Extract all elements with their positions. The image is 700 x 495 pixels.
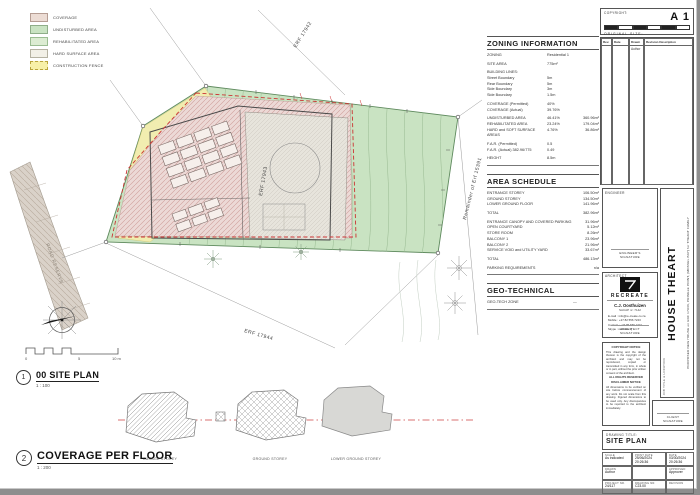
zoning-title: ZONING INFORMATION bbox=[487, 36, 599, 50]
erf-top-label: ERF 17942 bbox=[293, 21, 314, 49]
row-value2 bbox=[573, 156, 599, 162]
row-value: 141.96m² bbox=[573, 202, 599, 208]
row-label: LOWER GROUND FLOOR bbox=[487, 202, 573, 208]
legend-swatch bbox=[30, 13, 48, 22]
row-label: F.A.R. (Actual) 382.96/775 bbox=[487, 148, 547, 154]
area-row: PARKING REQUIREMENTS n/a bbox=[487, 266, 599, 272]
disclaimer-body: All dimensions to be verified on site be… bbox=[606, 386, 646, 411]
road-band: ROAD RESERVE bbox=[10, 162, 90, 330]
row-value2 bbox=[573, 62, 599, 68]
legend-swatch bbox=[30, 25, 48, 34]
row-value: — bbox=[573, 300, 599, 306]
row-label: COVERAGE (Actual) bbox=[487, 108, 547, 114]
row-label: HARD and SOFT SURFACE AREAS bbox=[487, 128, 547, 139]
row-value: 33.67m² bbox=[573, 248, 599, 254]
zoning-row: F.A.R. (Actual) 382.96/775 0.49 bbox=[487, 148, 599, 154]
zoning-row: HARD and SOFT SURFACE AREAS 4.76% 36.86m… bbox=[487, 128, 599, 139]
zoning-row: COVERAGE (Actual) 39.76% bbox=[487, 108, 599, 114]
rev-header: Revision Description bbox=[644, 38, 693, 46]
ground-storey-label: GROUND STOREY bbox=[253, 457, 288, 461]
rev-cell-drawn: Author bbox=[629, 46, 644, 185]
engineer-signature-line: ENGINEER'S SIGNATURE bbox=[611, 249, 649, 259]
legend-item: COVERAGE bbox=[30, 13, 104, 22]
copyright-notice-heading: COPYRIGHT NOTICE bbox=[606, 346, 646, 350]
view-number: 1 bbox=[16, 370, 31, 385]
row-value2 bbox=[573, 108, 599, 114]
project-name: HOUSE THEART bbox=[666, 246, 678, 341]
client-signature-line: CLIENT SIGNATURE bbox=[657, 413, 689, 423]
row-label: TOTAL bbox=[487, 257, 573, 263]
area-row: TOTAL 382.96m² bbox=[487, 211, 599, 217]
job-title-label: JOB TITLE & LOCATION bbox=[662, 358, 666, 395]
row-label: HEIGHT bbox=[487, 156, 547, 162]
zoning-row: Side Boundary 1.5m bbox=[487, 93, 599, 99]
row-label: Side Boundary bbox=[487, 93, 547, 99]
erf-right-label: Remainder of Erf 15391 bbox=[462, 157, 483, 221]
date-cell: DATE 03/30/2024 20:26:36 bbox=[666, 452, 694, 466]
drawing-nr-cell: DRAWING NR. C23.00 bbox=[632, 480, 666, 494]
engineer-label: ENGINEER bbox=[605, 191, 625, 195]
architect-box: ARCHITECT RECREATE C.J. Oosthuizen SACAP… bbox=[602, 272, 658, 338]
zoning-row: SITE AREA 775m² bbox=[487, 62, 599, 68]
view-title-coverage: 2 COVERAGE PER FLOOR 1 : 200 bbox=[16, 450, 173, 470]
lower-ground-storey-label: LOWER GROUND STOREY bbox=[331, 457, 382, 461]
row-label: PARKING REQUIREMENTS bbox=[487, 266, 573, 272]
svg-text:10 m: 10 m bbox=[112, 356, 122, 361]
legend-swatch bbox=[30, 61, 48, 70]
rev-header: Date bbox=[612, 38, 629, 46]
revision-table: Rev. Date Drawn Revision Description Aut… bbox=[600, 37, 694, 185]
sheet-info-grid: SCALE As indicated PRINT DATE 25/06/2024… bbox=[602, 452, 694, 488]
print-date-cell: PRINT DATE 25/06/2024 20:26:36 bbox=[632, 452, 666, 466]
area-schedule-section: AREA SCHEDULE ENTRANCE STOREY 106.50m² G… bbox=[487, 174, 599, 275]
tree-symbols bbox=[444, 256, 471, 314]
lower-ground-storey-plan bbox=[322, 386, 392, 436]
row-value2 bbox=[573, 148, 599, 154]
area-row: TOTAL 486.13m² bbox=[487, 257, 599, 263]
engineer-box: ENGINEER ENGINEER'S SIGNATURE bbox=[602, 188, 658, 268]
row-value: 8.5m bbox=[547, 156, 573, 162]
row-value2 bbox=[573, 93, 599, 99]
row-label: ZONING bbox=[487, 53, 547, 59]
scale-cell: SCALE As indicated bbox=[602, 452, 632, 466]
project-description: PROPOSED NEW HOUSE on ERF 17943, PRINGLE… bbox=[686, 217, 690, 369]
view-title-text: COVERAGE PER FLOOR bbox=[37, 450, 173, 464]
legend-item: REHABILITATED AREA bbox=[30, 37, 104, 46]
row-value: 382.96m² bbox=[573, 211, 599, 217]
client-signature-box: CLIENT SIGNATURE bbox=[652, 400, 694, 426]
project-nr-cell: PROJECT NR. 24/117 bbox=[602, 480, 632, 494]
architect-registration: SACAP nr: 7142 bbox=[603, 308, 657, 312]
legend-item: CONSTRUCTION FENCE bbox=[30, 61, 104, 70]
ground-storey-plan bbox=[216, 390, 306, 440]
row-label: SITE AREA bbox=[487, 62, 547, 68]
row-value2: 36.86m² bbox=[573, 128, 599, 139]
view-number: 2 bbox=[16, 450, 32, 466]
copyright-box: COPYRIGHT: A 1 ORIGINAL SIZE: bbox=[600, 8, 694, 35]
area-schedule-title: AREA SCHEDULE bbox=[487, 174, 599, 188]
geo-technical-section: GEO-TECHNICAL GEO-TECH ZONE — bbox=[487, 283, 599, 310]
rev-cell bbox=[601, 46, 612, 185]
svg-text:5: 5 bbox=[78, 356, 81, 361]
drawing-title: SITE PLAN bbox=[603, 437, 693, 445]
legend-label: REHABILITATED AREA bbox=[53, 39, 99, 44]
legend-label: COVERAGE bbox=[53, 15, 77, 20]
row-label: GEO-TECH ZONE bbox=[487, 300, 573, 306]
row-value: 4.76% bbox=[547, 128, 573, 139]
view-title-site-plan: 1 00 SITE PLAN 1 : 100 bbox=[16, 370, 99, 388]
drawing-sheet: ROAD RESERVE bbox=[0, 0, 697, 489]
row-label: SERVICE VOID and UTILITY YARD bbox=[487, 248, 573, 254]
architect-label: ARCHITECT bbox=[605, 274, 627, 278]
reference-scale-bar bbox=[604, 25, 690, 30]
architect-signature-line: ARCHITECT SIGNATURE bbox=[611, 325, 649, 335]
revision-cell: REVISION bbox=[666, 480, 694, 494]
disclaimer-heading: DISCLAIMER NOTICE bbox=[606, 381, 646, 385]
row-value: 0.49 bbox=[547, 148, 573, 154]
drawing-title-box: DRAWING TITLE: SITE PLAN bbox=[602, 430, 694, 450]
firm-name: RECREATE bbox=[607, 293, 653, 301]
rev-header: Rev. bbox=[601, 38, 612, 46]
row-value: 775m² bbox=[547, 62, 573, 68]
approved-cell: APPROVED Approver bbox=[666, 466, 694, 480]
zoning-row: ZONING Residential 1 bbox=[487, 53, 599, 59]
hard-surface-wing bbox=[245, 112, 348, 240]
row-value: n/a bbox=[573, 266, 599, 272]
legend-label: CONSTRUCTION FENCE bbox=[53, 63, 104, 68]
legend: COVERAGE UNDISTURBED AREA REHABILITATED … bbox=[30, 13, 104, 73]
legend-item: UNDISTURBED AREA bbox=[30, 25, 104, 34]
legal-box: COPYRIGHT NOTICE This drawing and the de… bbox=[602, 342, 650, 426]
copyright-label: COPYRIGHT: bbox=[604, 11, 627, 15]
rev-cell bbox=[644, 46, 693, 185]
row-value: 486.13m² bbox=[573, 257, 599, 263]
row-value: 1.5m bbox=[547, 93, 573, 99]
legend-swatch bbox=[30, 37, 48, 46]
scale-bar: 0 5 10 m bbox=[25, 348, 122, 361]
erf-bottom-label: ERF 17944 bbox=[243, 328, 273, 342]
rev-header: Drawn bbox=[629, 38, 644, 46]
view-scale: 1 : 100 bbox=[36, 383, 99, 388]
job-title-box: HOUSE THEART PROPOSED NEW HOUSE on ERF 1… bbox=[660, 188, 694, 398]
legend-label: HARD SURFACE AREA bbox=[53, 51, 100, 56]
drawn-cell: DRAWN Author bbox=[602, 466, 632, 480]
row-value2 bbox=[573, 53, 599, 59]
area-row: LOWER GROUND FLOOR 141.96m² bbox=[487, 202, 599, 208]
area-row: SERVICE VOID and UTILITY YARD 33.67m² bbox=[487, 248, 599, 254]
legend-label: UNDISTURBED AREA bbox=[53, 27, 97, 32]
copyright-notice-body: This drawing and the design thereon is t… bbox=[606, 351, 646, 376]
recreate-logo bbox=[620, 277, 640, 292]
garage-storey-plan bbox=[126, 392, 196, 442]
geo-technical-title: GEO-TECHNICAL bbox=[487, 283, 599, 297]
row-value: 39.76% bbox=[547, 108, 573, 114]
row-value: Residential 1 bbox=[547, 53, 573, 59]
legend-swatch bbox=[30, 49, 48, 58]
rev-cell bbox=[612, 46, 629, 185]
row-label: TOTAL bbox=[487, 211, 573, 217]
svg-text:0: 0 bbox=[25, 356, 28, 361]
contours-lower bbox=[399, 260, 440, 342]
zoning-row: HEIGHT 8.5m bbox=[487, 156, 599, 162]
info-column: ZONING INFORMATION ZONING Residential 1 … bbox=[487, 36, 599, 318]
zoning-section: ZONING INFORMATION ZONING Residential 1 … bbox=[487, 36, 599, 166]
geo-row: GEO-TECH ZONE — bbox=[487, 300, 599, 306]
view-title-text: 00 SITE PLAN bbox=[36, 370, 99, 382]
view-scale: 1 : 200 bbox=[37, 465, 173, 470]
sheet-size-label: A 1 bbox=[670, 11, 690, 23]
legend-item: HARD SURFACE AREA bbox=[30, 49, 104, 58]
site-plan-drawing: ROAD RESERVE bbox=[0, 0, 485, 488]
empty-cell bbox=[632, 466, 666, 480]
